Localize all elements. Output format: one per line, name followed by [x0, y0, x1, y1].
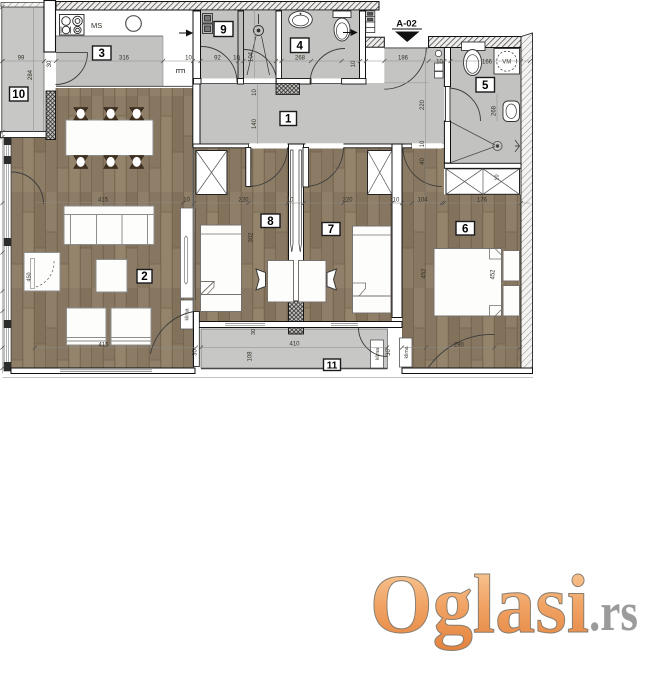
svg-text:10: 10 — [12, 89, 25, 101]
svg-text:1: 1 — [285, 114, 292, 126]
svg-text:415: 415 — [98, 198, 109, 204]
svg-text:140: 140 — [252, 118, 258, 129]
svg-text:9: 9 — [220, 24, 226, 36]
svg-text:3: 3 — [98, 48, 104, 60]
svg-text:302: 302 — [249, 232, 255, 243]
svg-text:10: 10 — [233, 56, 240, 62]
svg-text:220: 220 — [420, 99, 426, 110]
svg-text:A-02: A-02 — [396, 19, 417, 30]
svg-text:186: 186 — [398, 56, 409, 62]
svg-text:5: 5 — [482, 80, 489, 92]
svg-text:.rs: .rs — [589, 582, 638, 642]
svg-text:280: 280 — [454, 343, 465, 349]
svg-text:410: 410 — [289, 342, 300, 348]
svg-text:284: 284 — [28, 69, 34, 80]
svg-text:268: 268 — [492, 105, 498, 116]
svg-text:4: 4 — [296, 40, 303, 52]
svg-text:30: 30 — [251, 329, 257, 335]
svg-text:316: 316 — [119, 56, 130, 62]
svg-text:452: 452 — [491, 269, 497, 280]
svg-text:415: 415 — [98, 343, 109, 349]
svg-text:220: 220 — [342, 198, 353, 204]
svg-text:10: 10 — [183, 198, 190, 204]
svg-text:klima: klima — [185, 308, 191, 320]
svg-text:220: 220 — [238, 198, 249, 204]
svg-text:10: 10 — [287, 198, 294, 204]
svg-text:MS: MS — [91, 21, 102, 30]
svg-text:30: 30 — [47, 60, 53, 67]
svg-text:10: 10 — [185, 56, 192, 62]
svg-text:klima: klima — [404, 346, 410, 358]
svg-text:268: 268 — [295, 56, 306, 62]
svg-text:Oglasi: Oglasi — [370, 558, 589, 651]
svg-text:40: 40 — [420, 158, 426, 165]
svg-text:VM: VM — [502, 60, 511, 66]
svg-text:2: 2 — [141, 271, 147, 283]
svg-text:6: 6 — [462, 223, 468, 235]
svg-text:104: 104 — [249, 51, 255, 62]
svg-text:108: 108 — [248, 351, 254, 362]
svg-text:10: 10 — [436, 60, 443, 66]
svg-text:30: 30 — [193, 349, 199, 356]
svg-text:10: 10 — [393, 198, 400, 204]
svg-text:452: 452 — [422, 268, 428, 279]
svg-text:104: 104 — [417, 198, 428, 204]
svg-text:10: 10 — [495, 174, 501, 180]
svg-text:8: 8 — [267, 216, 274, 228]
svg-text:450: 450 — [27, 272, 33, 281]
svg-text:10: 10 — [351, 60, 357, 67]
svg-text:92: 92 — [214, 56, 221, 62]
svg-text:176: 176 — [477, 198, 488, 204]
svg-text:10: 10 — [420, 140, 426, 147]
svg-text:166: 166 — [482, 60, 493, 66]
svg-text:7: 7 — [328, 224, 334, 236]
svg-text:10: 10 — [252, 89, 258, 96]
svg-text:99: 99 — [18, 56, 25, 62]
svg-text:11: 11 — [327, 361, 338, 372]
svg-text:30: 30 — [386, 349, 392, 356]
